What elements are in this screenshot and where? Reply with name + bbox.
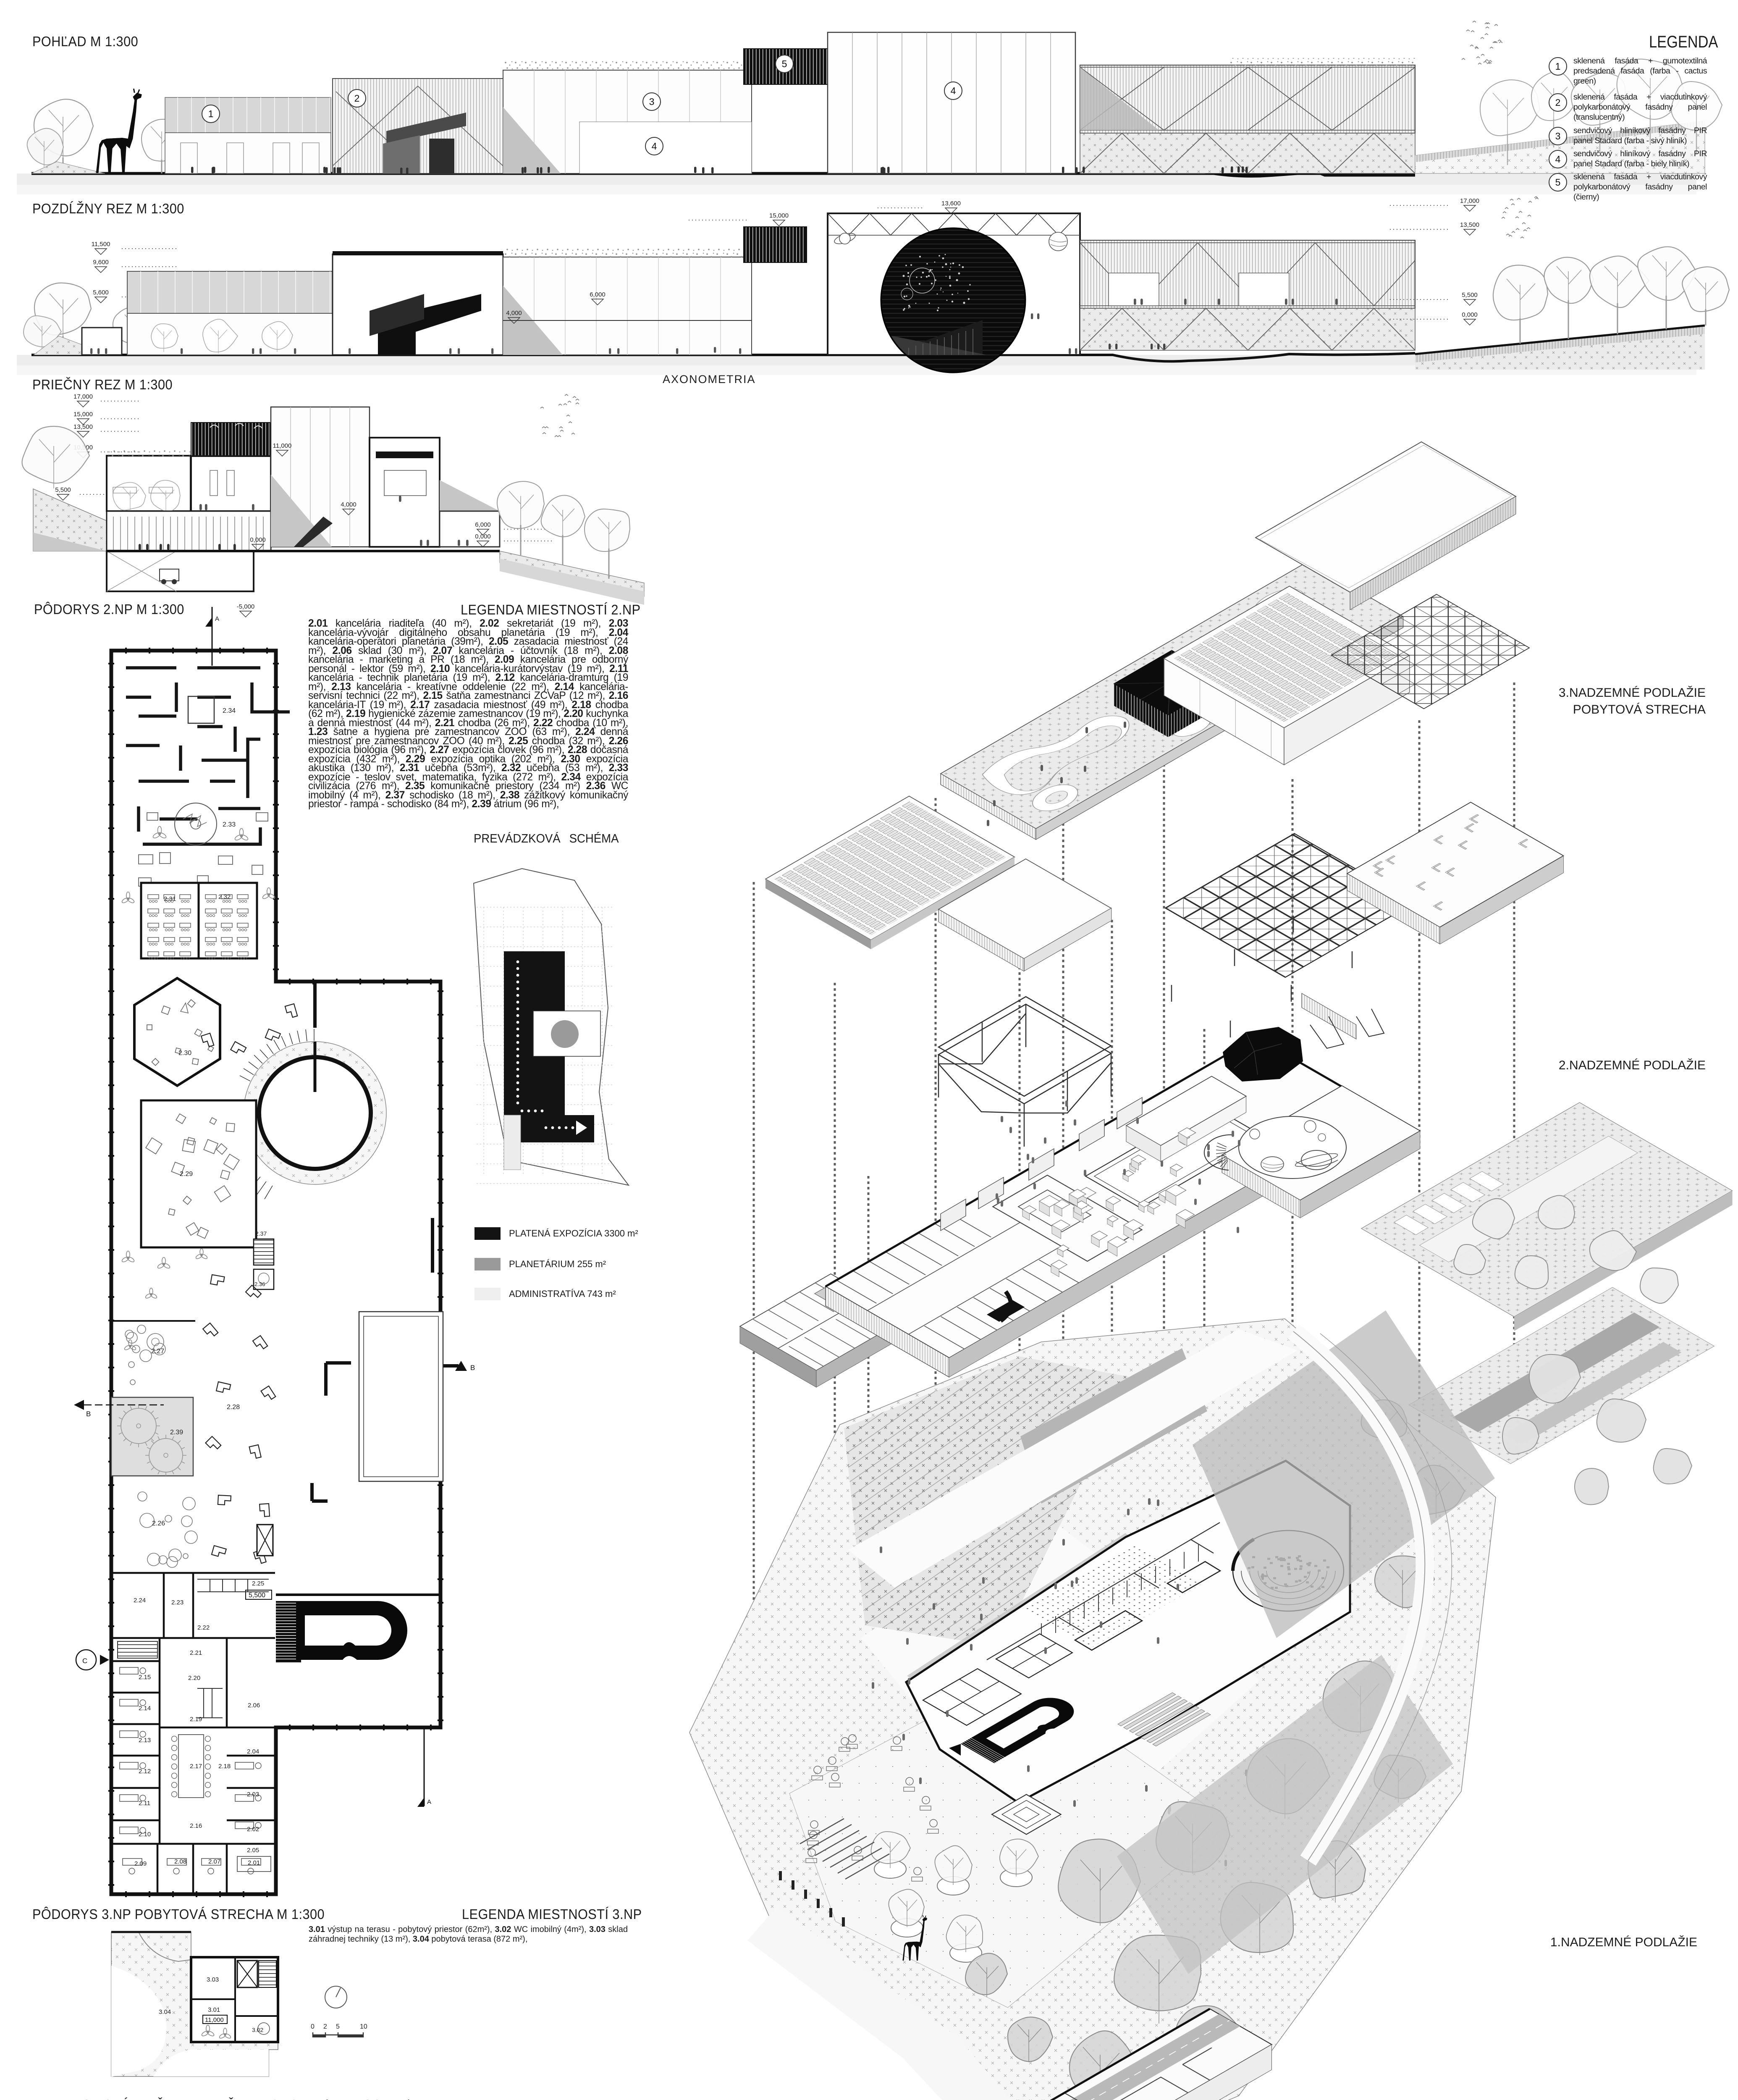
- svg-text:2.31: 2.31: [164, 895, 176, 903]
- svg-text:2.16: 2.16: [190, 1822, 202, 1830]
- svg-text:4: 4: [951, 85, 956, 96]
- svg-text:3: 3: [649, 96, 655, 107]
- svg-text:3.02: 3.02: [252, 2026, 263, 2033]
- svg-text:2.39: 2.39: [170, 1429, 183, 1436]
- svg-text:2.33: 2.33: [223, 821, 236, 828]
- svg-text:9,600: 9,600: [93, 259, 109, 266]
- svg-text:0,000: 0,000: [250, 536, 266, 543]
- svg-text:4: 4: [652, 141, 657, 152]
- svg-text:5,500: 5,500: [249, 1592, 265, 1599]
- svg-text:5,500: 5,500: [55, 486, 71, 493]
- svg-text:2.36: 2.36: [254, 1281, 265, 1287]
- svg-text:A: A: [427, 1798, 431, 1806]
- svg-text:2.01: 2.01: [248, 1859, 260, 1866]
- svg-text:2.30: 2.30: [178, 1050, 191, 1057]
- svg-text:0,000: 0,000: [475, 533, 491, 540]
- svg-text:6,000: 6,000: [590, 291, 606, 298]
- svg-text:15,000: 15,000: [769, 212, 789, 219]
- svg-text:13,500: 13,500: [1460, 221, 1479, 228]
- svg-text:2.34: 2.34: [223, 707, 236, 714]
- svg-text:3.04: 3.04: [159, 2008, 171, 2016]
- svg-text:11,500: 11,500: [92, 241, 110, 248]
- svg-text:5,600: 5,600: [93, 289, 109, 296]
- svg-text:5,500: 5,500: [1462, 291, 1478, 299]
- svg-text:2.25: 2.25: [252, 1580, 264, 1587]
- svg-text:2.11: 2.11: [139, 1800, 150, 1807]
- svg-text:2.24: 2.24: [134, 1597, 146, 1604]
- svg-text:2.12: 2.12: [139, 1768, 151, 1775]
- svg-text:17,000: 17,000: [1460, 197, 1479, 205]
- svg-text:2.32: 2.32: [218, 893, 231, 900]
- svg-text:2: 2: [354, 93, 360, 104]
- svg-text:1: 1: [208, 108, 214, 119]
- svg-text:2.18: 2.18: [218, 1763, 231, 1770]
- svg-text:0,000: 0,000: [1462, 311, 1478, 318]
- svg-text:2.06: 2.06: [248, 1702, 260, 1709]
- svg-text:2.23: 2.23: [171, 1599, 183, 1606]
- svg-text:4,000: 4,000: [506, 310, 522, 317]
- svg-text:2.29: 2.29: [180, 1171, 193, 1178]
- svg-text:13,600: 13,600: [941, 200, 961, 207]
- svg-text:2.26: 2.26: [152, 1520, 165, 1527]
- svg-text:0: 0: [311, 2023, 315, 2030]
- svg-text:-5,000: -5,000: [237, 603, 255, 610]
- svg-text:10: 10: [360, 2023, 367, 2030]
- svg-text:2.19: 2.19: [190, 1716, 202, 1723]
- svg-text:5: 5: [336, 2023, 340, 2030]
- svg-text:2.15: 2.15: [139, 1674, 151, 1681]
- svg-text:C: C: [82, 1657, 87, 1665]
- svg-text:2.04: 2.04: [247, 1748, 259, 1755]
- svg-text:2.17: 2.17: [190, 1763, 202, 1770]
- svg-text:2.05: 2.05: [247, 1847, 259, 1854]
- svg-text:2.03: 2.03: [247, 1791, 259, 1798]
- svg-text:5: 5: [782, 58, 787, 69]
- svg-text:A: A: [215, 615, 219, 622]
- svg-text:B: B: [86, 1410, 91, 1418]
- svg-text:2.28: 2.28: [227, 1404, 240, 1411]
- svg-text:2.10: 2.10: [139, 1831, 151, 1838]
- svg-text:2.09: 2.09: [134, 1860, 147, 1867]
- svg-text:4,000: 4,000: [341, 501, 357, 508]
- svg-text:B: B: [470, 1364, 475, 1372]
- svg-text:2.21: 2.21: [190, 1649, 202, 1656]
- svg-text:2.27: 2.27: [151, 1348, 164, 1355]
- svg-text:3.03: 3.03: [207, 1976, 219, 1983]
- svg-text:2.37: 2.37: [255, 1230, 267, 1237]
- svg-text:13,500: 13,500: [73, 423, 93, 430]
- svg-text:2: 2: [323, 2023, 327, 2030]
- svg-text:2.08: 2.08: [174, 1858, 186, 1865]
- svg-text:2.14: 2.14: [139, 1705, 151, 1712]
- svg-text:11,000: 11,000: [205, 2016, 224, 2024]
- svg-text:2.20: 2.20: [188, 1675, 200, 1682]
- svg-text:3.01: 3.01: [208, 2006, 220, 2013]
- svg-text:2.13: 2.13: [139, 1737, 151, 1744]
- svg-text:11,000: 11,000: [273, 442, 292, 449]
- svg-text:2.07: 2.07: [208, 1858, 220, 1865]
- svg-text:2.02: 2.02: [247, 1826, 259, 1833]
- svg-text:17,000: 17,000: [73, 393, 93, 400]
- svg-text:6,000: 6,000: [475, 521, 491, 528]
- svg-text:15,000: 15,000: [73, 411, 93, 418]
- svg-text:2.22: 2.22: [197, 1624, 210, 1631]
